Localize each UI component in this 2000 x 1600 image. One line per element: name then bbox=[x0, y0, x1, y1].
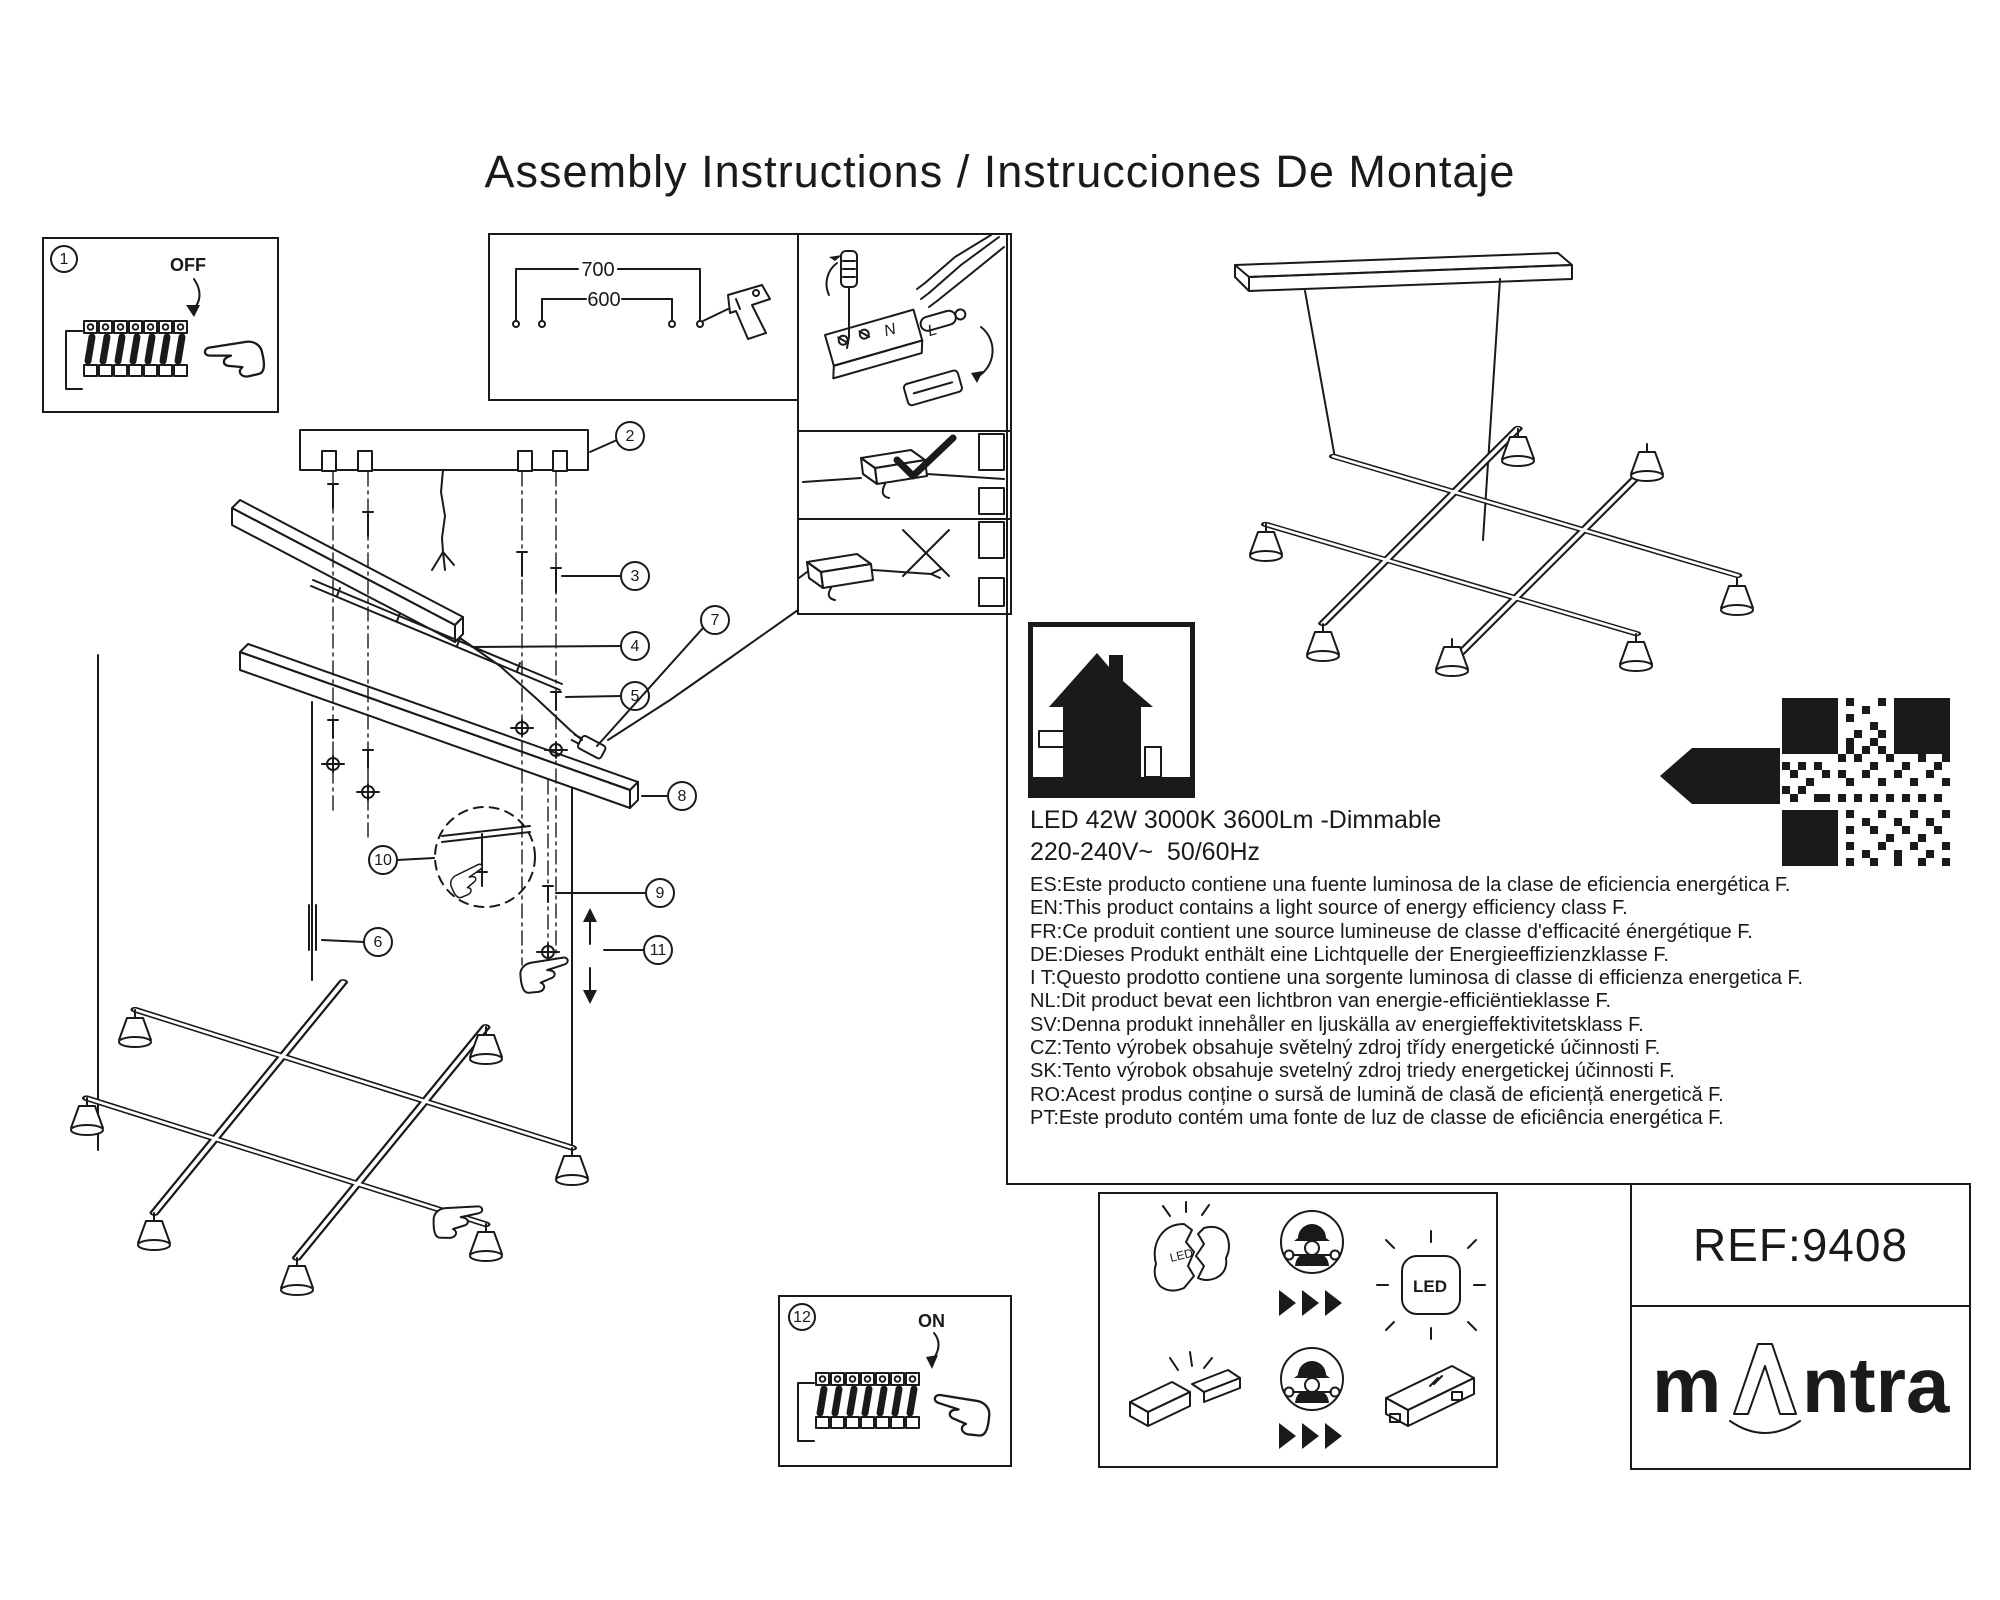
service-icons-panel: LED LED bbox=[1098, 1192, 1498, 1468]
washer bbox=[357, 784, 379, 800]
callout-8: 8 bbox=[668, 782, 696, 810]
spotlight-frame bbox=[1202, 393, 1770, 707]
svg-text:6: 6 bbox=[374, 934, 383, 951]
energy-note-it: I T:Questo prodotto contiene una sorgent… bbox=[1030, 967, 1970, 990]
callout-12: 12 bbox=[789, 1304, 815, 1330]
energy-note-cz: CZ:Tento výrobek obsahuje světelný zdroj… bbox=[1030, 1037, 1970, 1060]
qualified-technician-icon bbox=[1281, 1348, 1343, 1410]
brand-smile-arc bbox=[1730, 1421, 1800, 1433]
breaker-off-label: OFF bbox=[170, 255, 206, 275]
svg-text:2: 2 bbox=[626, 428, 635, 445]
energy-note-en: EN:This product contains a light source … bbox=[1030, 897, 1970, 920]
led-driver-icon bbox=[1386, 1366, 1474, 1426]
drill-icon bbox=[703, 285, 770, 339]
check-icon bbox=[897, 438, 953, 476]
energy-class-arrow-icon: F bbox=[1658, 744, 1782, 808]
energy-note-sv: SV:Denna produkt innehåller en ljuskälla… bbox=[1030, 1014, 1970, 1037]
svg-text:10: 10 bbox=[374, 852, 392, 869]
drill-template-panel: 700 600 bbox=[488, 233, 810, 401]
broken-led-icon: LED bbox=[1155, 1202, 1229, 1291]
svg-text:12: 12 bbox=[793, 1309, 811, 1326]
energy-class-letter: F bbox=[1728, 756, 1752, 800]
exploded-assembly-diagram: 2 3 4 5 bbox=[30, 420, 810, 1310]
ceiling-bar bbox=[1235, 253, 1572, 291]
energy-note-fr: FR:Ce produit contient une source lumine… bbox=[1030, 921, 1970, 944]
rotate-arrow bbox=[977, 327, 993, 377]
qr-code bbox=[1782, 698, 1950, 866]
terminal-cover bbox=[903, 370, 963, 407]
terminal-block: N L bbox=[821, 305, 942, 378]
mains-wires bbox=[917, 235, 1004, 307]
ceiling bbox=[300, 430, 588, 470]
energy-note-nl: NL:Dit product bevat een lichtbron van e… bbox=[1030, 990, 1970, 1013]
screw bbox=[328, 484, 338, 508]
triple-arrow-icon bbox=[1279, 1423, 1342, 1449]
callout-7: 7 bbox=[701, 606, 729, 634]
mounting-rail bbox=[311, 580, 562, 690]
callout-1: 1 bbox=[51, 246, 77, 272]
detail-circle bbox=[435, 807, 535, 907]
broken-driver-icon bbox=[1130, 1352, 1240, 1426]
energy-notes: ES:Este producto contiene una fuente lum… bbox=[1030, 874, 1970, 1130]
breaker-row bbox=[66, 321, 187, 389]
quick-connector bbox=[570, 731, 607, 759]
screw bbox=[517, 552, 527, 576]
screw bbox=[363, 750, 373, 768]
dim-700: 700 bbox=[581, 259, 614, 281]
svg-text:8: 8 bbox=[678, 788, 687, 805]
callout-6: 6 bbox=[364, 928, 392, 956]
energy-note-sk: SK:Tento výrobok obsahuje svetelný zdroj… bbox=[1030, 1060, 1970, 1083]
down-arrow bbox=[583, 968, 597, 1004]
fixture-top-bar bbox=[240, 644, 638, 808]
svg-text:7: 7 bbox=[711, 612, 720, 629]
step-1-power-off-panel: 1 OFF bbox=[42, 237, 279, 413]
brand-logo: m ntra bbox=[1632, 1307, 1969, 1466]
cross-icon bbox=[903, 530, 949, 576]
step-12-power-on-panel: 12 ON bbox=[778, 1295, 1012, 1467]
mantra-logo: m ntra bbox=[1646, 1328, 1956, 1446]
callout-10: 10 bbox=[369, 846, 397, 874]
screw bbox=[551, 692, 561, 710]
correct-connection-panel bbox=[797, 430, 1012, 522]
breaker-on-label: ON bbox=[918, 1311, 945, 1331]
assembled-fixture-diagram bbox=[1200, 235, 1770, 735]
ref-box: REF:9408 m ntra bbox=[1630, 1183, 1971, 1470]
callout-11: 11 bbox=[644, 936, 672, 964]
svg-text:3: 3 bbox=[631, 568, 640, 585]
terminal-n-label: N bbox=[882, 321, 898, 341]
mains-cable bbox=[441, 470, 445, 552]
callout-2: 2 bbox=[616, 422, 644, 450]
instruction-sheet: Assembly Instructions / Instrucciones De… bbox=[0, 0, 2000, 1600]
qualified-technician-icon bbox=[1281, 1211, 1343, 1273]
callout-3: 3 bbox=[621, 562, 649, 590]
callout-5: 5 bbox=[621, 682, 649, 710]
callout-9: 9 bbox=[646, 879, 674, 907]
dim-600: 600 bbox=[587, 289, 620, 311]
screw bbox=[363, 512, 373, 536]
house-indoor-use-icon bbox=[1028, 622, 1195, 798]
page-title: Assembly Instructions / Instrucciones De… bbox=[0, 146, 2000, 198]
svg-text:9: 9 bbox=[656, 885, 665, 902]
energy-note-ro: RO:Acest produs conține o sursă de lumin… bbox=[1030, 1084, 1970, 1107]
connector-leader-cable bbox=[608, 610, 798, 740]
svg-text:4: 4 bbox=[631, 638, 640, 655]
energy-note-de: DE:Dieses Produkt enthält eine Lichtquel… bbox=[1030, 944, 1970, 967]
brand-ntra: ntra bbox=[1802, 1341, 1950, 1429]
product-ref: REF:9408 bbox=[1632, 1185, 1969, 1307]
pointing-hand-icon bbox=[205, 342, 264, 377]
energy-note-pt: PT:Este produto contém uma fonte de luz … bbox=[1030, 1107, 1970, 1130]
screw bbox=[328, 720, 338, 738]
suspension-cable bbox=[1305, 291, 1335, 458]
energy-note-es: ES:Este producto contiene una fuente lum… bbox=[1030, 874, 1970, 897]
screw bbox=[543, 886, 553, 902]
wiring-panel: N L bbox=[797, 233, 1012, 434]
svg-text:11: 11 bbox=[650, 942, 667, 959]
screw bbox=[551, 568, 561, 592]
led-light-source-icon: LED bbox=[1377, 1231, 1485, 1339]
pointing-hand-icon bbox=[927, 1388, 994, 1439]
circuit-breaker-on-icon: 12 ON bbox=[780, 1297, 1006, 1461]
washer bbox=[511, 720, 533, 736]
svg-text:1: 1 bbox=[60, 251, 69, 268]
brand-m: m bbox=[1652, 1341, 1721, 1429]
breaker-row bbox=[798, 1373, 919, 1441]
vertical-divider bbox=[1006, 233, 1008, 1183]
washer bbox=[322, 756, 344, 772]
circuit-breaker-off-icon: 1 OFF bbox=[44, 239, 273, 407]
triple-arrow-icon bbox=[1279, 1290, 1342, 1316]
svg-text:LED: LED bbox=[1413, 1277, 1447, 1296]
brand-caret bbox=[1734, 1344, 1796, 1414]
up-arrow bbox=[583, 908, 597, 944]
cable-clamp-box bbox=[799, 554, 873, 600]
callout-4: 4 bbox=[621, 632, 649, 660]
wrong-connection-panel bbox=[797, 518, 1012, 615]
